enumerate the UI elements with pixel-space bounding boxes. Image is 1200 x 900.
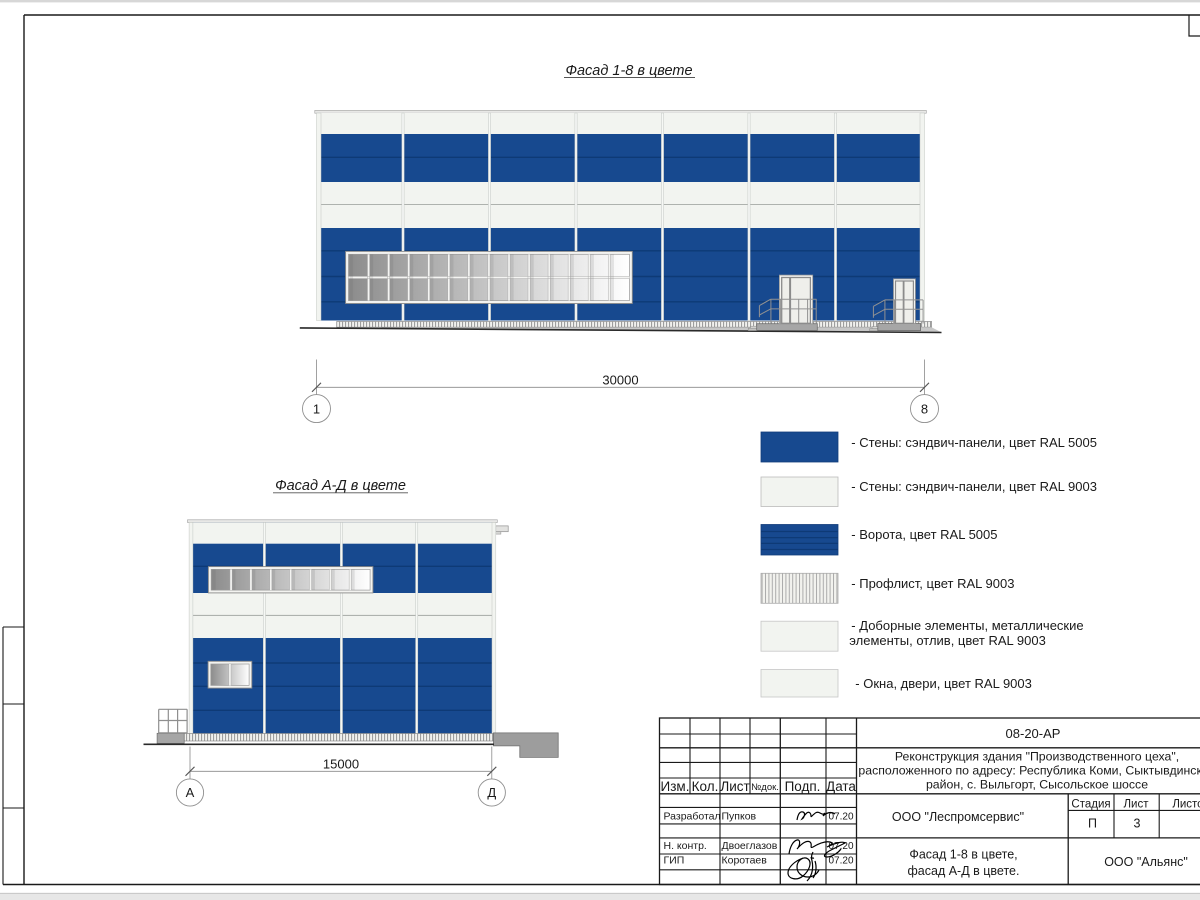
svg-text:Стадия: Стадия bbox=[1071, 799, 1110, 811]
svg-text:- Профлист, цвет RAL 9003: - Профлист, цвет RAL 9003 bbox=[851, 576, 1014, 591]
svg-text:08-20-АР: 08-20-АР bbox=[1006, 726, 1061, 741]
svg-text:фасад А-Д в цвете.: фасад А-Д в цвете. bbox=[908, 864, 1020, 878]
svg-text:- Окна, двери, цвет RAL 9003: - Окна, двери, цвет RAL 9003 bbox=[855, 676, 1032, 691]
svg-text:Изм.: Изм. bbox=[661, 779, 690, 794]
svg-text:30000: 30000 bbox=[602, 373, 638, 388]
svg-text:07.20: 07.20 bbox=[828, 855, 853, 866]
svg-text:Фасад 1-8 в цвете: Фасад 1-8 в цвете bbox=[565, 63, 692, 79]
svg-text:Подп.: Подп. bbox=[785, 779, 821, 794]
svg-text:8: 8 bbox=[921, 401, 928, 416]
svg-text:Д: Д bbox=[487, 785, 496, 800]
svg-text:- Доборные элементы, металличе: - Доборные элементы, металлические bbox=[851, 618, 1083, 633]
svg-text:Пупков: Пупков bbox=[722, 811, 757, 823]
svg-text:А: А bbox=[186, 785, 195, 800]
svg-text:элементы, отлив, цвет RAL 9003: элементы, отлив, цвет RAL 9003 bbox=[849, 633, 1046, 648]
svg-text:№док.: №док. bbox=[751, 782, 779, 793]
svg-text:3: 3 bbox=[1134, 817, 1141, 831]
svg-text:Н. контр.: Н. контр. bbox=[664, 840, 707, 852]
svg-text:- Стены: сэндвич-панели, цвет: - Стены: сэндвич-панели, цвет RAL 9003 bbox=[851, 479, 1097, 494]
svg-text:15000: 15000 bbox=[323, 756, 359, 771]
svg-text:ООО "Альянс": ООО "Альянс" bbox=[1104, 855, 1188, 869]
svg-text:Лист: Лист bbox=[1124, 799, 1150, 811]
svg-text:Листов: Листов bbox=[1172, 799, 1200, 811]
svg-text:ГИП: ГИП bbox=[664, 855, 685, 867]
svg-text:П: П bbox=[1088, 817, 1097, 831]
svg-text:Лист: Лист bbox=[720, 779, 749, 794]
svg-text:Фасад А-Д в цвете: Фасад А-Д в цвете bbox=[275, 478, 406, 494]
svg-text:Коротаев: Коротаев bbox=[722, 855, 768, 867]
svg-text:Реконструкция здания "Производ: Реконструкция здания "Производственного … bbox=[895, 750, 1179, 764]
svg-text:расположенного по адресу: Респ: расположенного по адресу: Республика Ком… bbox=[858, 764, 1200, 778]
svg-text:Разработал: Разработал bbox=[664, 811, 721, 823]
svg-text:- Ворота, цвет RAL 5005: - Ворота, цвет RAL 5005 bbox=[851, 527, 997, 542]
svg-text:ООО "Леспромсервис": ООО "Леспромсервис" bbox=[892, 810, 1024, 824]
svg-text:- Стены: сэндвич-панели, цвет: - Стены: сэндвич-панели, цвет RAL 5005 bbox=[851, 435, 1097, 450]
svg-text:Фасад 1-8 в цвете,: Фасад 1-8 в цвете, bbox=[909, 848, 1017, 862]
svg-text:1: 1 bbox=[313, 401, 320, 416]
svg-text:Двоеглазов: Двоеглазов bbox=[722, 840, 778, 852]
svg-text:Кол.: Кол. bbox=[692, 779, 719, 794]
svg-text:Дата: Дата bbox=[826, 779, 856, 794]
svg-text:район, с. Выльгорт, Сысольское: район, с. Выльгорт, Сысольское шоссе bbox=[926, 777, 1148, 791]
